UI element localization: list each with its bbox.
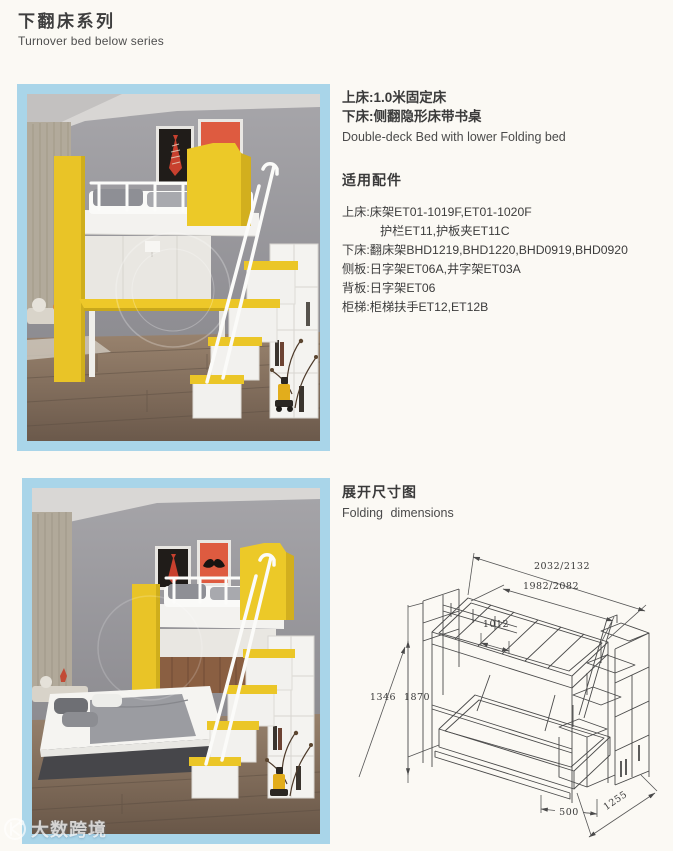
dim-height-b: 1870 bbox=[404, 692, 430, 703]
dims-heading-cn: 展开尺寸图 bbox=[342, 483, 454, 502]
dim-width-inner: 1012 bbox=[483, 619, 509, 630]
dim-depth-right: 1255 bbox=[602, 789, 630, 813]
product-name-en: Double-deck Bed with lower Folding bed bbox=[342, 128, 668, 146]
page-subtitle: Turnover bed below series bbox=[18, 34, 164, 48]
accessory-line: 背板:日字架ET06 bbox=[342, 279, 668, 298]
product-photo-unfolded bbox=[17, 84, 330, 451]
isometric-bed-drawing: 2032/2132 1982/2082 1012 1346 1870 500 1… bbox=[355, 545, 673, 851]
brand-logo-icon bbox=[3, 817, 27, 841]
dim-stair-width: 500 bbox=[559, 807, 579, 818]
accessories-heading: 适用配件 bbox=[342, 170, 668, 190]
catalog-page: 下翻床系列 Turnover bed below series bbox=[0, 0, 673, 851]
accessory-line: 侧板:日字架ET06A,井字架ET03A bbox=[342, 260, 668, 279]
brand-name: 大数跨境 bbox=[31, 816, 107, 842]
dimension-labels: 2032/2132 1982/2082 1012 1346 1870 500 1… bbox=[370, 561, 630, 818]
upper-bed-spec: 上床:1.0米固定床 bbox=[342, 88, 668, 107]
dim-overall-inner: 1982/2082 bbox=[523, 581, 579, 592]
page-title: 下翻床系列 bbox=[18, 12, 164, 32]
brand-watermark: 大数跨境 bbox=[3, 816, 107, 842]
fold-desk bbox=[79, 299, 238, 308]
accessories-list: 上床:床架ET01-1019F,ET01-1020F 护栏ET11,护板夹ET1… bbox=[342, 203, 668, 317]
lower-bed-spec: 下床:侧翻隐形床带书桌 bbox=[342, 107, 668, 126]
folding-dimensions-heading: 展开尺寸图 Folding dimensions bbox=[342, 483, 454, 522]
accessory-line: 下床:翻床架BHD1219,BHD1220,BHD0919,BHD0920 bbox=[342, 241, 668, 260]
room-illustration-desk-mode bbox=[27, 94, 320, 441]
accessory-line: 柜梯:柜梯扶手ET12,ET12B bbox=[342, 298, 668, 317]
page-header: 下翻床系列 Turnover bed below series bbox=[18, 12, 164, 48]
dim-overall-top: 2032/2132 bbox=[534, 561, 590, 572]
dim-height-a: 1346 bbox=[370, 692, 396, 703]
product-info: 上床:1.0米固定床 下床:侧翻隐形床带书桌 Double-deck Bed w… bbox=[342, 88, 668, 317]
dims-heading-en: Folding dimensions bbox=[342, 504, 454, 522]
bed-outline bbox=[423, 589, 649, 803]
dimension-drawing: 2032/2132 1982/2082 1012 1346 1870 500 1… bbox=[355, 545, 673, 851]
room-illustration-bed-mode bbox=[32, 488, 320, 834]
accessory-line: 护栏ET11,护板夹ET11C bbox=[342, 222, 668, 241]
accessory-line: 上床:床架ET01-1019F,ET01-1020F bbox=[342, 203, 668, 222]
product-photo-folded bbox=[22, 478, 330, 844]
